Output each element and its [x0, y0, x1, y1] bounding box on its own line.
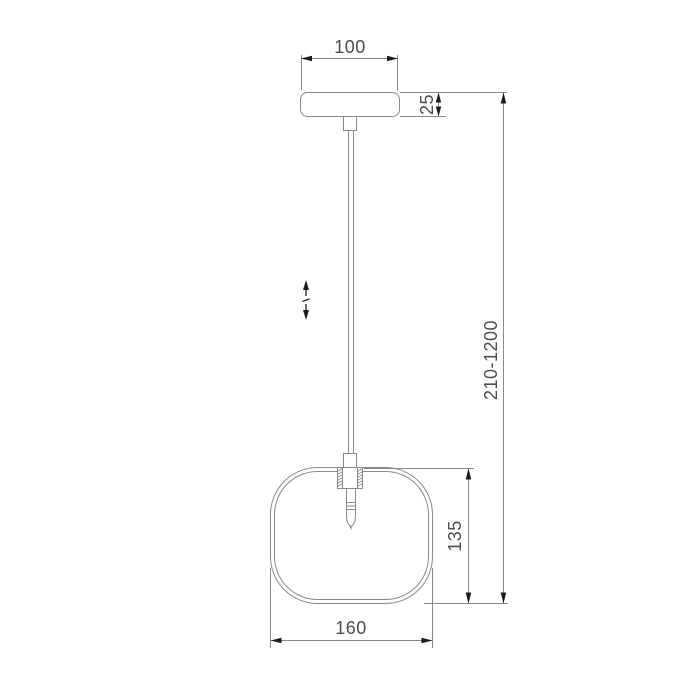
- canopy-stub: [344, 117, 357, 131]
- height-adjustable-icon: [303, 280, 310, 320]
- dimension-canopy-width: 100: [301, 37, 398, 90]
- dimension-shade-height: 135: [445, 469, 471, 604]
- canopy-width-label: 100: [334, 37, 366, 57]
- dimension-canopy-height: 25: [400, 93, 507, 117]
- dimension-shade-width: 160: [271, 568, 433, 648]
- dimension-hanging-height: 210-1200: [481, 93, 506, 604]
- lamp-socket: [338, 454, 363, 489]
- socket-connector: [344, 454, 357, 468]
- bulb: [347, 489, 356, 529]
- arrow-down-icon: [501, 593, 507, 604]
- pendant-lamp-technical-drawing: 100 25 210-1200: [0, 0, 700, 700]
- shade-width-label: 160: [335, 618, 367, 638]
- suspension-rod: [349, 131, 354, 454]
- bulb-body: [347, 489, 356, 529]
- arrow-right-icon: [387, 56, 398, 62]
- arrow-up-icon: [501, 93, 507, 104]
- arrow-up-icon: [466, 469, 472, 480]
- arrow-left-icon: [301, 56, 312, 62]
- ceiling-canopy: [301, 93, 400, 117]
- canopy-height-label: 25: [417, 94, 437, 115]
- drawing-canvas: 100 25 210-1200: [0, 0, 700, 700]
- hanging-height-label: 210-1200: [481, 320, 501, 400]
- arrow-right-icon: [422, 638, 433, 644]
- arrow-left-icon: [271, 638, 282, 644]
- arrow-down-icon: [466, 593, 472, 604]
- shade-height-label: 135: [445, 520, 465, 552]
